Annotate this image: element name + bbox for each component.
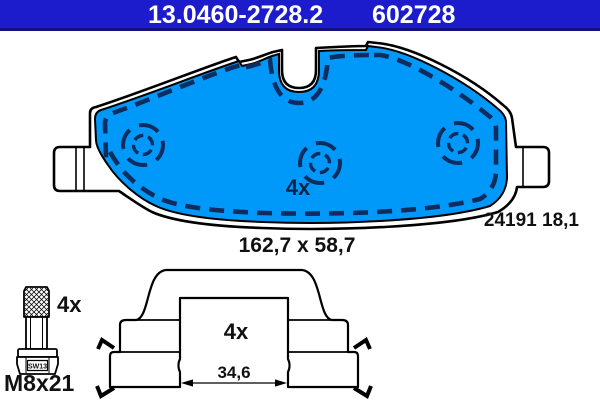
bolt-flange xyxy=(18,349,57,357)
bolt-shank xyxy=(26,317,47,349)
pad-code-thickness: 24191 18,1 xyxy=(484,210,580,231)
shim-width-label: 34,6 xyxy=(217,363,250,382)
drawing-canvas: 4x 24191 18,1 162,7 x 58,7 xyxy=(0,0,600,400)
dimension-arrow-right xyxy=(275,379,287,386)
brake-pad-drawing: 4x 24191 18,1 162,7 x 58,7 xyxy=(54,42,579,257)
dimension-arrow-left xyxy=(181,379,193,386)
bolt-drawing: SW13 4x M8x21 xyxy=(4,287,82,396)
shim-quantity-label: 4x xyxy=(224,319,249,344)
bolt-thread-outline xyxy=(24,287,49,317)
bolt-quantity-label: 4x xyxy=(57,292,82,317)
pad-quantity-label: 4x xyxy=(286,175,311,200)
pad-dimensions: 162,7 x 58,7 xyxy=(239,234,356,257)
product-technical-image: 13.0460-2728.2 602728 xyxy=(0,0,600,400)
bolt-thread-spec: M8x21 xyxy=(4,370,75,396)
shim-drawing: 34,6 4x xyxy=(97,270,371,396)
shim-dimension: 34,6 xyxy=(181,363,287,387)
